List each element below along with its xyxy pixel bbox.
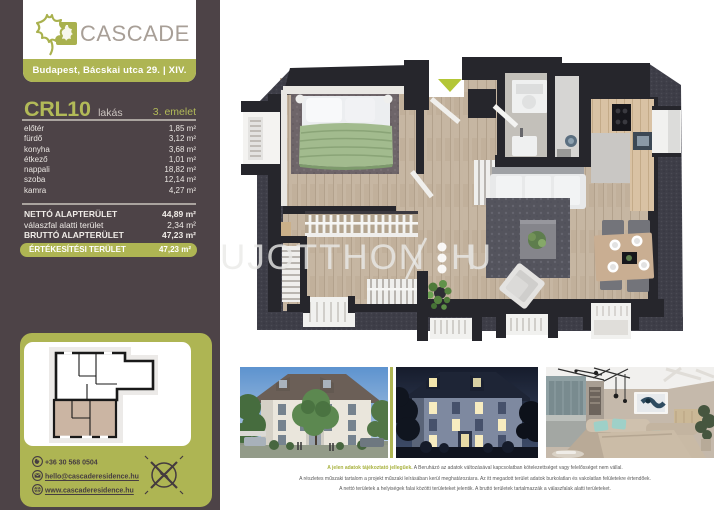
svg-text:UJOTTHON: UJOTTHON: [220, 238, 427, 277]
svg-text:HU: HU: [451, 238, 494, 277]
